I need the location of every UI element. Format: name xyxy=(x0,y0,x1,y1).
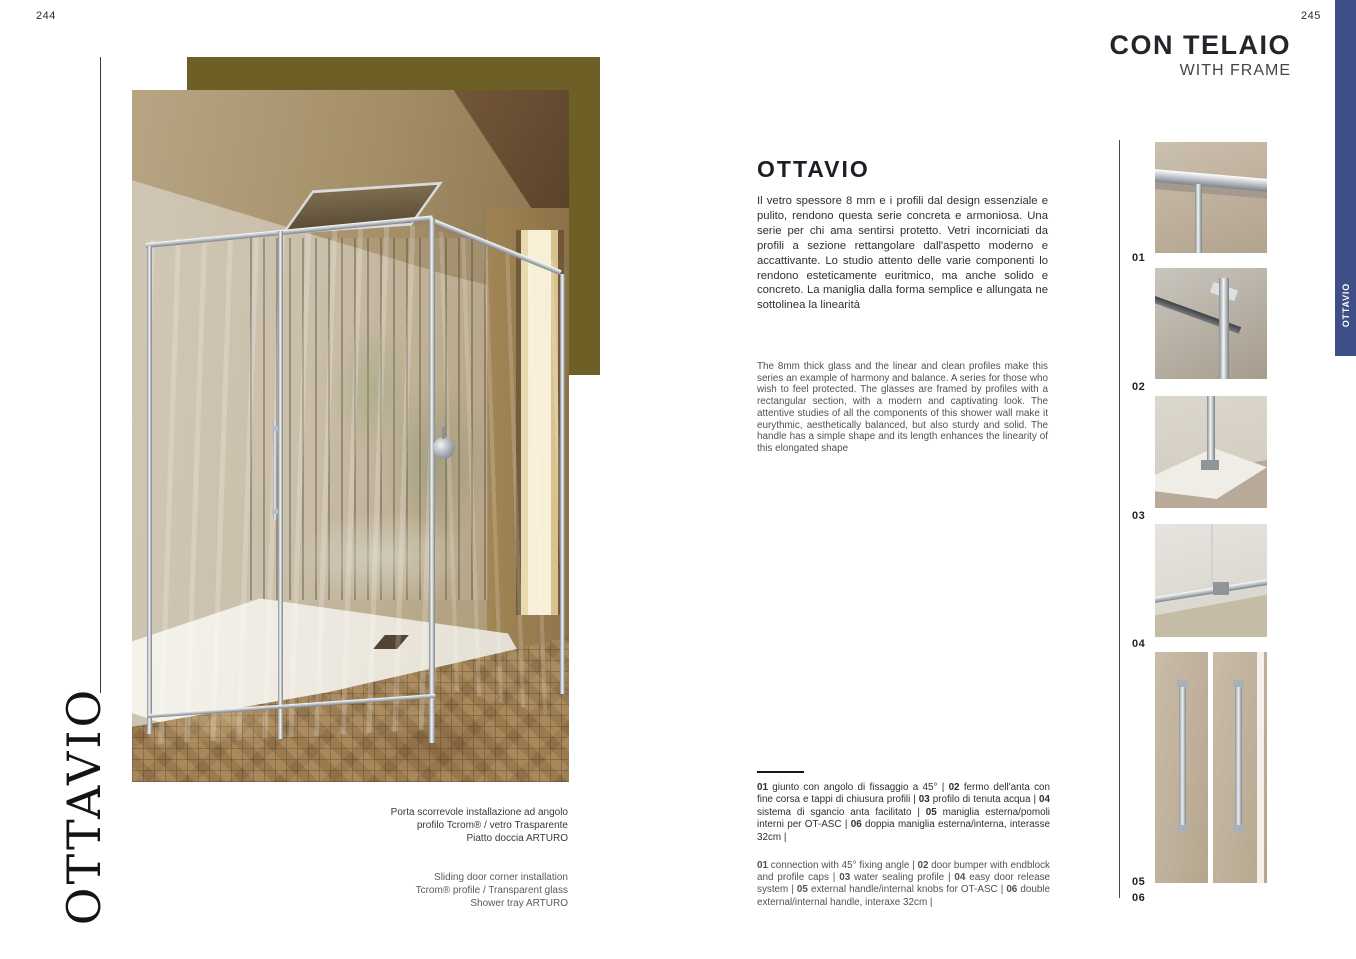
detail-label-02: 02 xyxy=(1132,381,1145,393)
product-description-italian: Il vetro spessore 8 mm e i profili dal d… xyxy=(757,194,1048,313)
caption-it-line1: Porta scorrevole installazione ad angolo xyxy=(391,806,568,819)
photo-frame-post-left xyxy=(147,246,152,734)
page-number-right: 245 xyxy=(1301,10,1321,22)
series-tab-label: OTTAVIO xyxy=(1341,283,1351,327)
series-side-tab: OTTAVIO xyxy=(1335,0,1356,356)
detail-label-01: 01 xyxy=(1132,252,1145,264)
series-vertical-title: OTTAVIO xyxy=(57,687,111,925)
legend-divider-rule xyxy=(757,771,804,773)
detail-photo-01-top-profile xyxy=(1155,142,1267,253)
detail-label-03: 03 xyxy=(1132,510,1145,522)
caption-en-line1: Sliding door corner installation xyxy=(416,871,568,884)
left-vertical-rule xyxy=(100,57,101,693)
section-header: CON TELAIO WITH FRAME xyxy=(1110,30,1292,80)
product-title: OTTAVIO xyxy=(757,156,870,183)
detail-03-foot-bracket xyxy=(1201,460,1219,470)
photo-frame-post-door xyxy=(278,231,283,739)
detail-label-06: 06 xyxy=(1132,892,1145,904)
detail-photo-03-bottom-corner xyxy=(1155,396,1267,508)
section-subtitle: WITH FRAME xyxy=(1110,62,1292,80)
main-product-photo xyxy=(132,90,569,782)
photo-side-glass-panel xyxy=(433,230,563,717)
detail-label-04: 04 xyxy=(1132,638,1145,650)
detail-02-corner-post xyxy=(1219,278,1229,379)
photo-caption-italian: Porta scorrevole installazione ad angolo… xyxy=(391,806,568,846)
photo-frame-post-right xyxy=(560,274,565,694)
caption-it-line3: Piatto doccia ARTURO xyxy=(391,832,568,845)
detail-01-vertical-profile xyxy=(1195,184,1202,253)
catalog-spread: 244 245 OTTAVIO Porta scorrevole install… xyxy=(0,0,1356,959)
detail-06-handle-panel xyxy=(1213,652,1267,883)
series-tab-label-wrap: OTTAVIO xyxy=(1335,262,1356,348)
page-number-left: 244 xyxy=(36,10,56,22)
detail-06-glass-slit xyxy=(1257,652,1264,883)
detail-04-glass-line xyxy=(1211,524,1213,586)
detail-label-05: 05 xyxy=(1132,876,1145,888)
detail-04-release-clamp xyxy=(1213,582,1229,595)
detail-photo-04-bottom-rail xyxy=(1155,524,1267,637)
detail-05-handle-bar xyxy=(1179,680,1186,832)
photo-shower-valve xyxy=(433,437,455,459)
detail-column-rule xyxy=(1119,140,1120,898)
caption-en-line2: Tcrom® profile / Transparent glass xyxy=(416,884,568,897)
photo-front-glass-panel xyxy=(150,225,432,745)
detail-05-handle-panel xyxy=(1155,652,1208,883)
caption-it-line2: profilo Tcrom® / vetro Trasparente xyxy=(391,819,568,832)
detail-06-handle-bar xyxy=(1235,680,1242,832)
parts-legend-english: 01 connection with 45° fixing angle | 02… xyxy=(757,860,1050,909)
photo-frame-post-corner xyxy=(429,219,435,743)
detail-03-post xyxy=(1207,396,1215,468)
photo-caption-english: Sliding door corner installation Tcrom® … xyxy=(416,871,568,911)
detail-photo-02-corner-joint xyxy=(1155,268,1267,379)
parts-legend-italian: 01 giunto con angolo di fissaggio a 45° … xyxy=(757,782,1050,844)
section-title: CON TELAIO xyxy=(1110,30,1292,61)
product-description-english: The 8mm thick glass and the linear and c… xyxy=(757,361,1048,455)
caption-en-line3: Shower tray ARTURO xyxy=(416,897,568,910)
detail-photo-05-06-handles xyxy=(1155,652,1267,883)
photo-door-handle xyxy=(273,420,277,520)
